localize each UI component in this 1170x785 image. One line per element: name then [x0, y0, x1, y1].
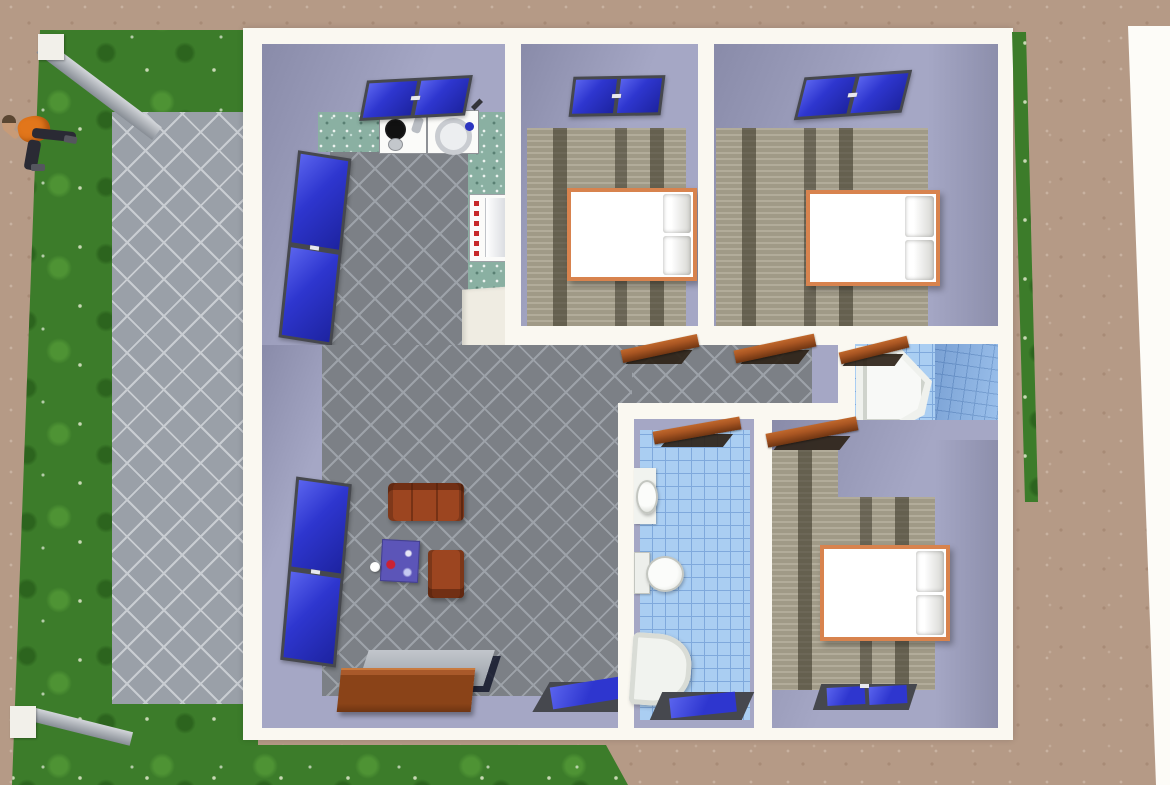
- pillow: [663, 236, 691, 275]
- window-pane: [869, 685, 908, 705]
- bathroom-2-bottom-window: [652, 690, 752, 722]
- bedroom-3-bottom-window: [813, 682, 917, 712]
- window-pane: [363, 81, 418, 118]
- refrigerator-knob: [474, 211, 479, 216]
- lawn-strip-right: [1012, 32, 1038, 502]
- refrigerator-knob: [474, 241, 479, 246]
- bedroom-2-window: [794, 70, 912, 120]
- sideboard-front: [337, 668, 476, 712]
- floor-plan-scene: [0, 0, 1170, 785]
- wall-hallway-south: [618, 403, 840, 419]
- bedroom-2-bed: [806, 190, 940, 286]
- refrigerator-knob: [474, 231, 479, 236]
- ball: [370, 562, 380, 572]
- window-pane: [617, 78, 662, 113]
- window-pane: [415, 78, 470, 115]
- window-pane: [572, 79, 617, 114]
- window-pane: [291, 480, 348, 573]
- refrigerator-knob: [474, 251, 479, 256]
- refrigerator-knob: [474, 201, 479, 206]
- garden-wall-upper-post: [38, 34, 64, 60]
- pedestrian-shoe-right: [63, 135, 77, 144]
- window-latch-icon: [612, 94, 621, 98]
- kitchen-top-window: [359, 75, 473, 121]
- sofa: [388, 483, 464, 521]
- bed-pillows: [905, 196, 934, 280]
- pillow: [905, 196, 934, 237]
- bedroom-3-door: [763, 418, 863, 456]
- window-latch-icon: [411, 96, 421, 101]
- wall-kitchen-bedroom1: [505, 42, 521, 346]
- washer-knob: [465, 122, 474, 131]
- bedroom-2-wall-face-right: [928, 44, 998, 330]
- bed-pillows: [663, 194, 691, 275]
- window-pane: [283, 571, 340, 664]
- kettle: [388, 138, 403, 151]
- bedroom-1-window: [569, 75, 666, 117]
- coffee-table: [380, 539, 420, 583]
- window-latch-icon: [860, 684, 869, 688]
- bedroom-3-bed: [820, 545, 950, 641]
- window-pane: [282, 247, 339, 343]
- pedestrian: [0, 112, 86, 174]
- window-pane: [292, 154, 349, 250]
- bedroom-1-door: [619, 336, 703, 374]
- house: [243, 28, 1013, 740]
- pillow: [905, 240, 934, 281]
- pillow: [916, 595, 944, 636]
- paved-patio: [112, 112, 258, 704]
- pedestrian-shoe-left: [31, 164, 45, 171]
- bed-pillows: [916, 551, 944, 635]
- window-pane: [850, 73, 908, 113]
- garden-wall-lower-post: [10, 706, 36, 738]
- bathroom-2-basin-bowl: [636, 480, 658, 514]
- living-room-floor: [322, 345, 632, 700]
- bathroom-2-door: [650, 418, 746, 452]
- faucet: [411, 116, 425, 134]
- pedestrian-hair: [2, 115, 16, 123]
- bathroom-2-toilet-bowl: [646, 556, 684, 592]
- stove-burner: [385, 119, 406, 140]
- pillow: [663, 194, 691, 233]
- bedroom-1-bed: [567, 188, 697, 281]
- bedroom-2-door: [732, 336, 820, 374]
- pillow: [916, 551, 944, 592]
- refrigerator-knob: [474, 221, 479, 226]
- bedroom-3-floor-upper: [772, 450, 838, 497]
- window-pane: [827, 686, 866, 706]
- wall-bedroom1-bedroom2: [698, 42, 714, 346]
- window-latch-icon: [848, 93, 858, 98]
- bathroom-1-door: [837, 338, 917, 372]
- kitchen-floor: [330, 150, 470, 350]
- armchair: [428, 550, 464, 598]
